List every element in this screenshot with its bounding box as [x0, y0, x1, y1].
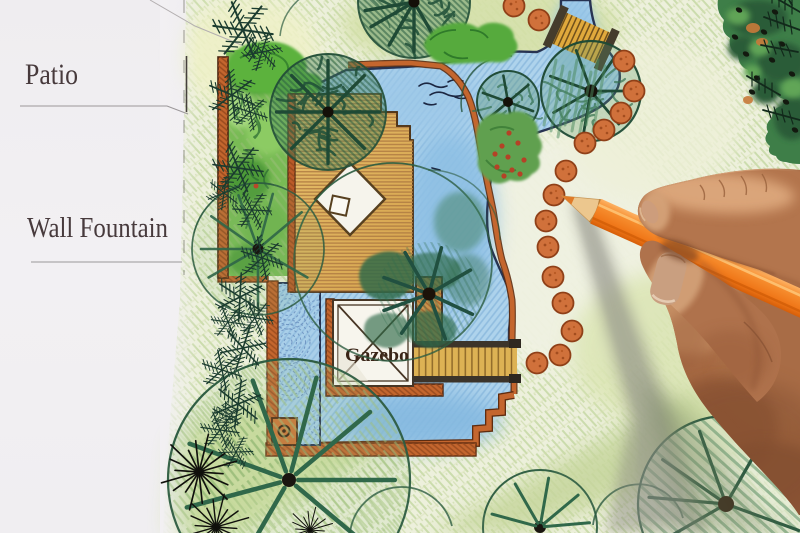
- svg-text:Patio: Patio: [25, 58, 78, 91]
- svg-text:Gazebo: Gazebo: [345, 346, 409, 366]
- svg-text:Wall Fountain: Wall Fountain: [27, 213, 168, 244]
